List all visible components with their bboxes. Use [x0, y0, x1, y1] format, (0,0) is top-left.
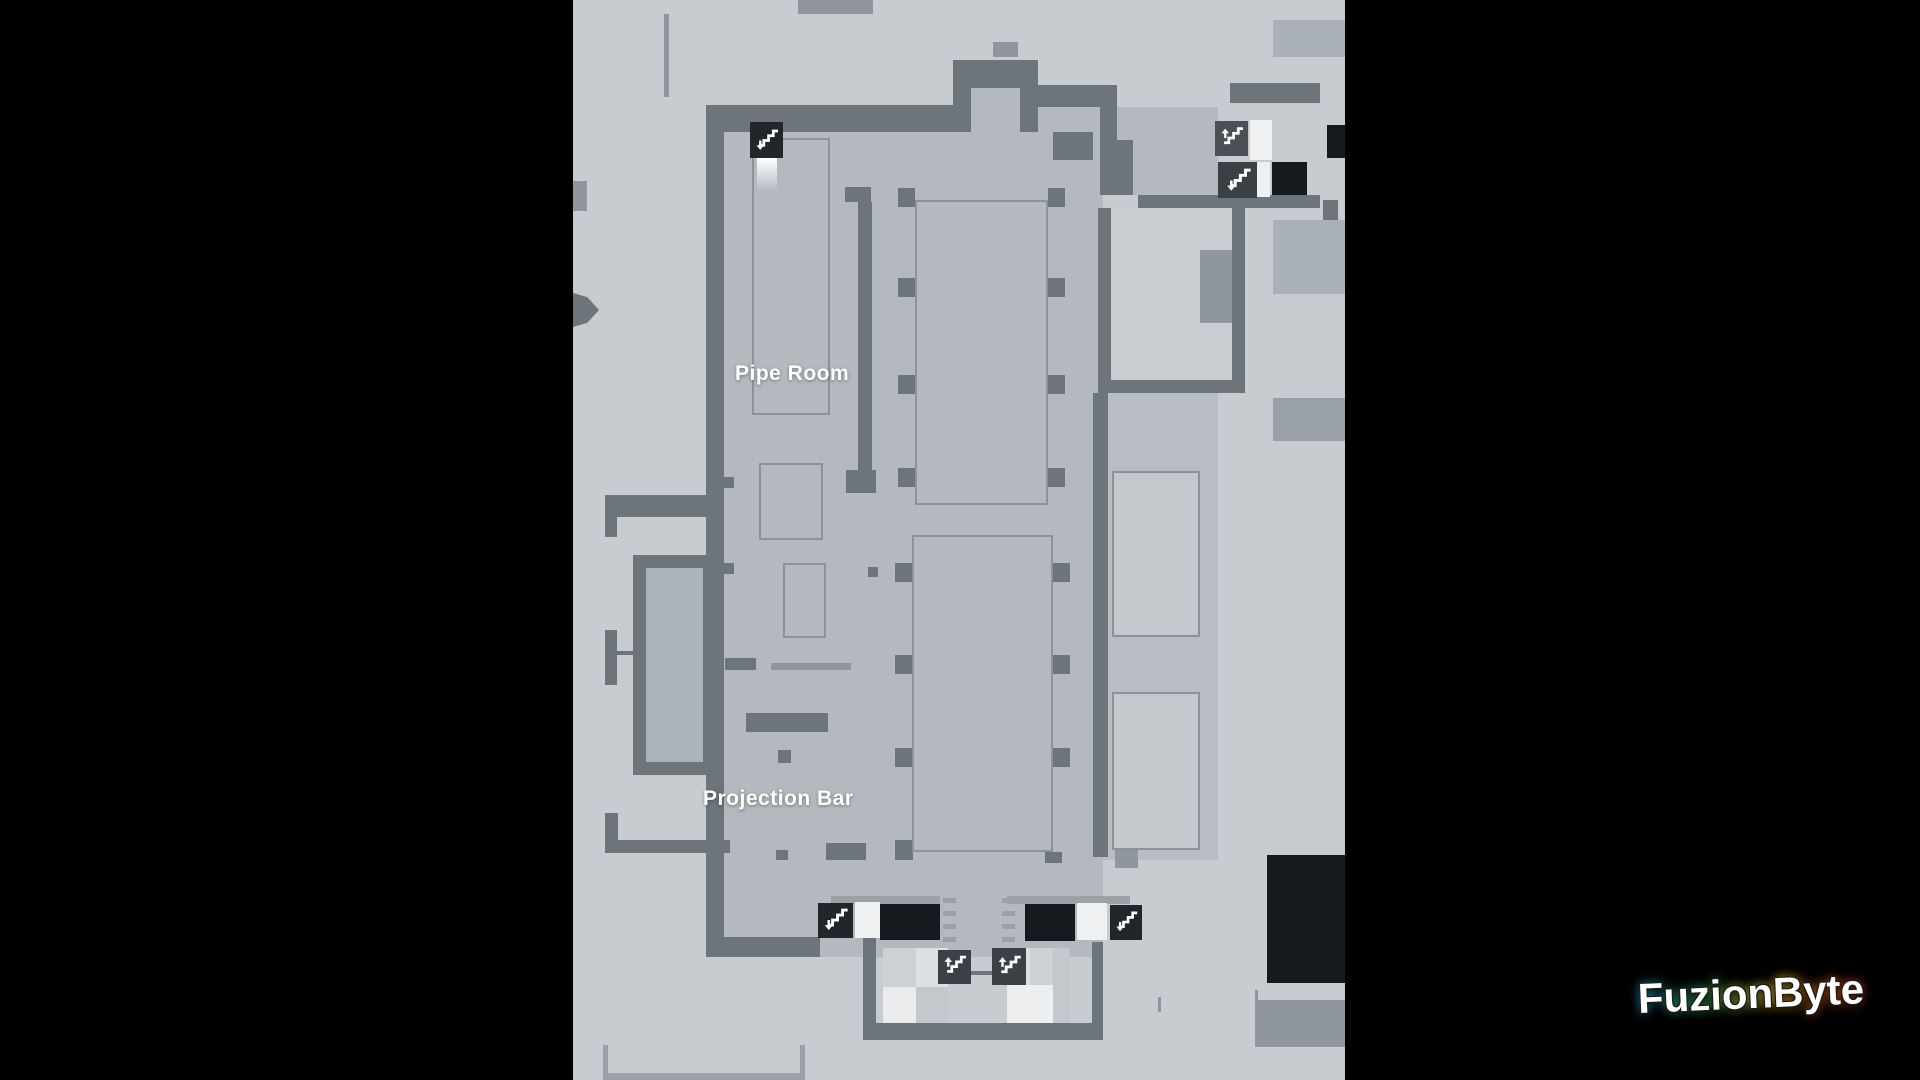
wall-segment: [863, 937, 876, 1040]
outer-bracket: [605, 495, 716, 517]
escalator-step: [1002, 924, 1015, 929]
wall-stub: [725, 658, 756, 670]
outer-stub: [993, 42, 1018, 57]
pillar-dot: [868, 567, 878, 577]
stairs-down-icon: [750, 122, 783, 158]
stairs-down-icon: [1110, 905, 1142, 940]
outer-line: [664, 14, 669, 97]
wall-stub: [895, 843, 913, 860]
video-frame: Pipe Room Projection Bar FuzionByte Fuzi…: [0, 0, 1920, 1080]
bench: [746, 713, 828, 732]
top-wall: [1028, 85, 1117, 107]
escalator-well: [1025, 904, 1075, 941]
outer-notch: [573, 181, 587, 211]
pillar-dot: [776, 850, 788, 860]
bottom-wall: [863, 1023, 1103, 1040]
escalator-step: [943, 924, 956, 929]
tile-white: [1007, 985, 1053, 1023]
pillar-stub: [1045, 852, 1062, 863]
left-wall: [706, 105, 724, 957]
pillar-stub: [1053, 748, 1070, 767]
outer-band: [1257, 1000, 1345, 1047]
outer-patch: [1273, 220, 1345, 294]
outer-stub: [798, 0, 873, 14]
wall-tick: [724, 477, 734, 488]
central-room-lower: [912, 535, 1053, 852]
pillar-stub: [895, 655, 912, 674]
room-wall: [1098, 380, 1245, 393]
corridor-wall: [846, 470, 876, 493]
tile-white: [1257, 162, 1270, 197]
escalator-step: [1002, 937, 1015, 942]
escalator-well: [880, 904, 940, 940]
wall-stub: [1053, 132, 1093, 160]
top-doorway: [971, 88, 1020, 132]
map-viewport: Pipe Room Projection Bar: [573, 0, 1345, 1080]
tile-black: [1327, 125, 1345, 158]
tile-white: [1077, 903, 1107, 940]
pillar-stub: [1048, 278, 1065, 297]
escalator-step: [1002, 898, 1015, 903]
pillar-stub: [898, 468, 915, 487]
outer-line: [1255, 990, 1258, 1047]
pillar-stub: [898, 375, 915, 394]
pipe-room-label: Pipe Room: [735, 362, 849, 386]
escalator-strip: [757, 158, 777, 192]
escalator-step: [943, 898, 956, 903]
pillar-stub: [898, 278, 915, 297]
stairs-down-icon: [818, 903, 853, 938]
tile-light: [883, 948, 916, 987]
tile-gray: [1053, 948, 1070, 1023]
stairs-up-icon: [1215, 121, 1248, 156]
left-annex-floor: [646, 568, 703, 762]
wall-segment: [1230, 83, 1320, 103]
tile-light: [1030, 948, 1053, 985]
tile-gray: [916, 987, 948, 1023]
pillar-stub: [895, 748, 912, 767]
projection-bar-label: Projection Bar: [703, 787, 854, 811]
corridor-wall: [845, 187, 871, 202]
pillar-stub: [1048, 375, 1065, 394]
escalator-step: [1002, 911, 1015, 916]
bottom-wall: [706, 937, 820, 957]
tile-white: [1250, 120, 1272, 160]
outer-patch: [1273, 398, 1345, 441]
room-wall: [1232, 195, 1245, 393]
doorway-marker: [573, 293, 599, 327]
tile-white: [883, 987, 916, 1023]
tile-black: [1272, 162, 1307, 195]
room-wall: [1098, 208, 1111, 393]
right-room: [1112, 471, 1200, 637]
void-block: [1267, 855, 1345, 983]
pillar-stub: [1048, 468, 1065, 487]
small-room: [783, 563, 826, 638]
stairs-down-icon: [1218, 162, 1257, 198]
outer-tick: [1158, 997, 1161, 1012]
outer-bracket: [605, 495, 617, 537]
outer-bar: [605, 630, 617, 685]
escalator-step: [943, 937, 956, 942]
pillar-stub: [898, 188, 915, 207]
wall-segment: [1100, 107, 1117, 195]
outer-patch: [1273, 20, 1345, 57]
watermark: FuzionByte FuzionByte: [1637, 965, 1869, 1035]
tile-gray: [1275, 118, 1313, 160]
pillar: [1115, 847, 1138, 868]
pillar-stub: [1048, 188, 1065, 207]
pillar-stub: [895, 563, 912, 582]
central-room-upper: [915, 200, 1048, 505]
pillar-dot: [778, 750, 791, 763]
outer-line: [603, 1073, 805, 1080]
wall-tick: [724, 563, 734, 574]
connector-line: [971, 971, 992, 975]
wall-stub: [1323, 200, 1338, 220]
right-wall: [1093, 393, 1108, 857]
stairs-up-icon: [992, 948, 1026, 985]
room-blob: [1200, 250, 1232, 323]
right-room: [1112, 692, 1200, 850]
watermark-text: FuzionByte: [1637, 965, 1865, 1023]
tile-white: [855, 902, 880, 938]
wall-segment: [1117, 140, 1133, 195]
escalator-step: [943, 911, 956, 916]
pillar-stub: [1053, 563, 1070, 582]
stairs-up-icon: [938, 950, 971, 984]
escalator-rail: [1007, 896, 1130, 904]
thin-wall: [771, 663, 851, 670]
top-wall: [708, 105, 953, 132]
corridor-wall: [858, 202, 872, 470]
outer-line: [800, 1045, 805, 1073]
small-room: [759, 463, 823, 540]
pillar-stub: [1053, 655, 1070, 674]
wall-stub: [826, 843, 866, 860]
